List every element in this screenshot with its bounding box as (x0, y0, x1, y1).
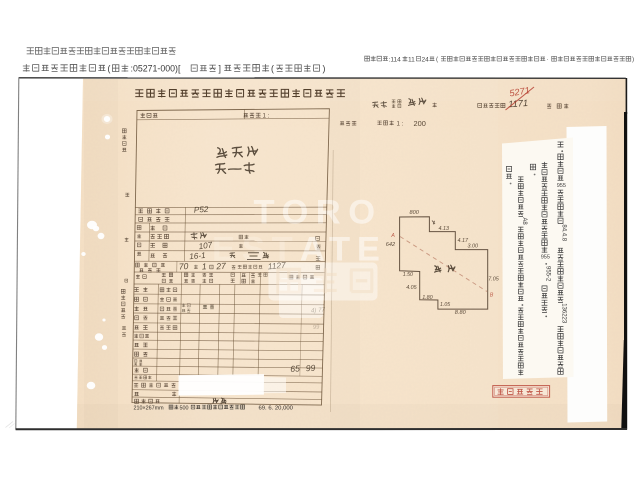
svg-text:(: ( (271, 64, 274, 74)
svg-text:11: 11 (408, 56, 415, 63)
svg-text:4.13: 4.13 (439, 226, 450, 232)
svg-text:1.50: 1.50 (403, 272, 413, 278)
svg-text:16-1: 16-1 (189, 251, 206, 261)
svg-text:1.05: 1.05 (440, 302, 450, 308)
svg-text:7.05: 7.05 (488, 277, 499, 283)
svg-text:107: 107 (198, 240, 213, 251)
svg-text:(: ( (436, 56, 439, 63)
svg-text:24: 24 (422, 56, 430, 63)
svg-text:65: 65 (290, 363, 300, 374)
svg-text:): ) (632, 56, 634, 63)
svg-text:642: 642 (386, 242, 396, 248)
svg-text::114: :114 (389, 56, 402, 63)
svg-text:70: 70 (178, 261, 188, 272)
svg-text:1: 1 (201, 261, 207, 271)
svg-text:8.80: 8.80 (455, 310, 467, 316)
svg-text:1 :: 1 : (263, 113, 270, 120)
svg-text:3.00: 3.00 (468, 243, 479, 249)
svg-text:99: 99 (313, 325, 321, 331)
svg-text:210×267mm: 210×267mm (134, 405, 165, 411)
svg-text::05271-000)[: :05271-000)[ (131, 64, 181, 74)
svg-text:800: 800 (410, 210, 420, 216)
svg-text:99: 99 (305, 363, 315, 374)
svg-text:TORO: TORO (254, 193, 383, 231)
svg-text:(: ( (108, 64, 111, 74)
svg-text:500: 500 (180, 405, 189, 411)
svg-text:B: B (490, 293, 494, 299)
svg-text:69. 6. 20,000: 69. 6. 20,000 (259, 406, 294, 412)
svg-text:A: A (390, 233, 395, 239)
svg-text:A8: A8 (521, 217, 527, 225)
svg-text:P52: P52 (194, 205, 210, 215)
svg-text:955: 955 (557, 183, 566, 189)
svg-text:·: · (547, 56, 549, 63)
svg-text:955: 955 (541, 255, 550, 261)
svg-text:200: 200 (414, 119, 426, 128)
svg-text:1.80: 1.80 (422, 295, 433, 301)
svg-text:): ) (323, 64, 326, 74)
svg-text:84.4.8: 84.4.8 (561, 224, 567, 241)
svg-text:136223: 136223 (561, 303, 567, 324)
svg-text:955-2: 955-2 (545, 266, 551, 282)
svg-text:4.05: 4.05 (406, 285, 417, 291)
svg-text:]: ] (219, 64, 221, 74)
svg-text:1 :: 1 : (397, 120, 404, 127)
